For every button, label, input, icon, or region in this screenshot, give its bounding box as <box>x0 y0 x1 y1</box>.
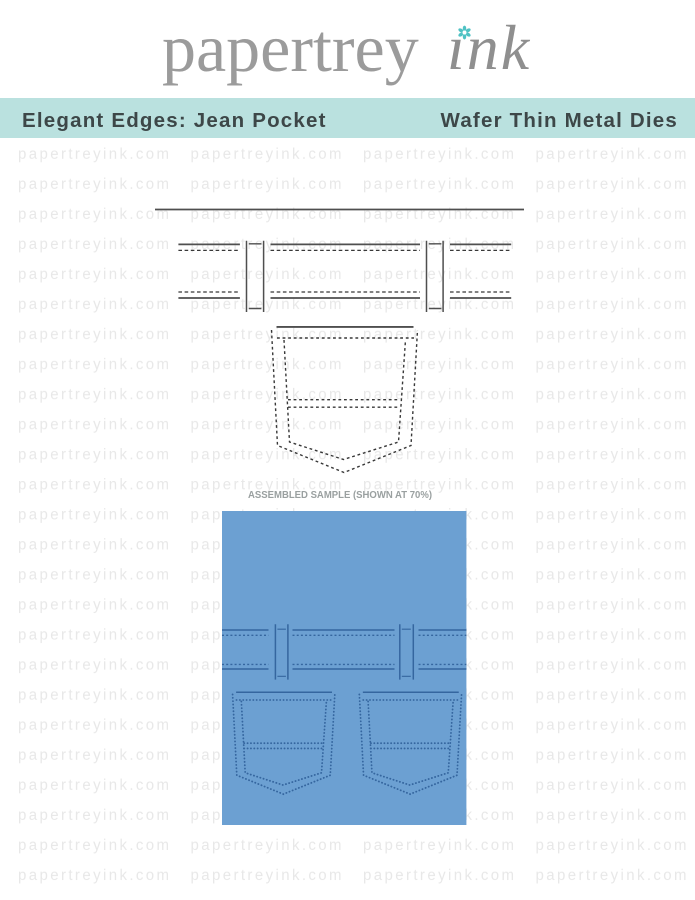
svg-text:ASSEMBLED SAMPLE (SHOWN AT 70%: ASSEMBLED SAMPLE (SHOWN AT 70%) <box>248 489 432 501</box>
